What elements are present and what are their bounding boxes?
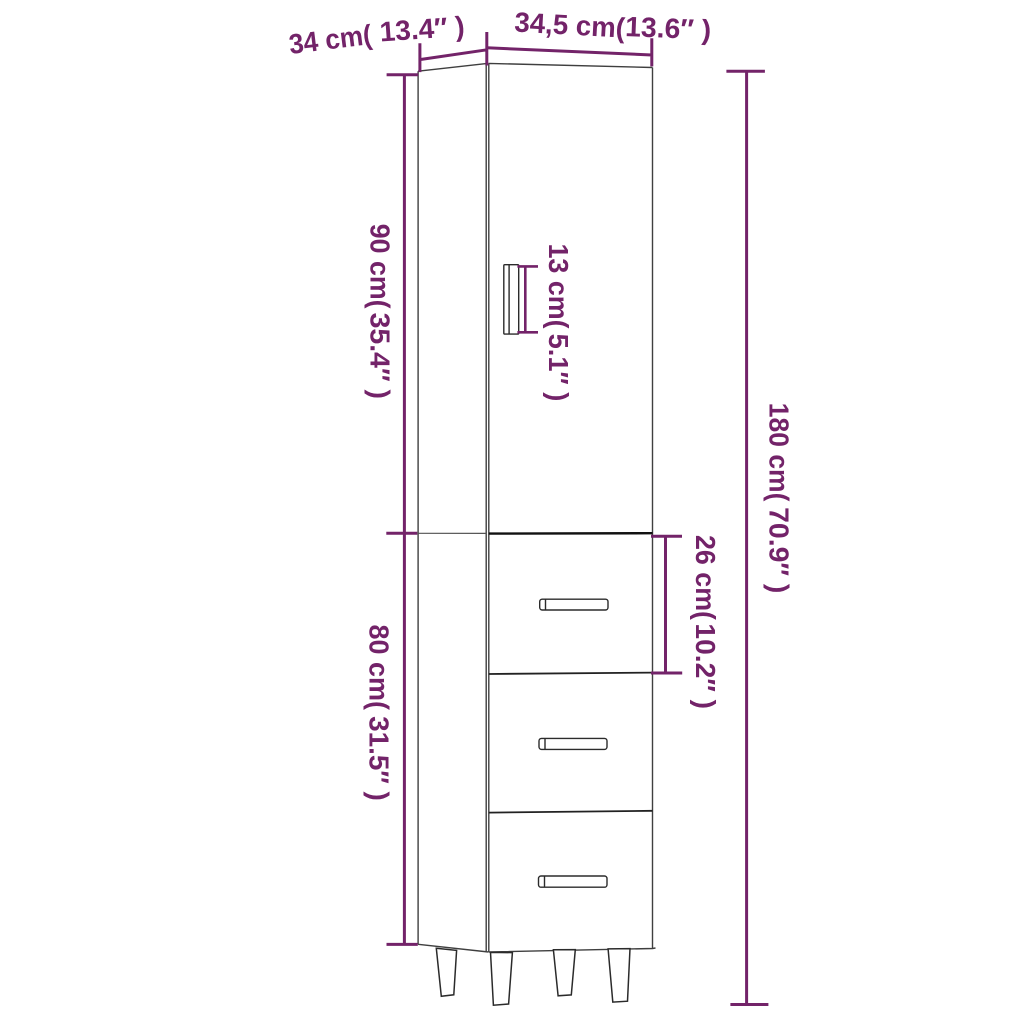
svg-text:13 cm(: 13 cm( <box>543 244 574 330</box>
svg-text:26 cm(: 26 cm( <box>690 535 721 621</box>
svg-text:5.1″ ): 5.1″ ) <box>543 334 574 402</box>
svg-text:31.5″ ): 31.5″ ) <box>363 716 394 801</box>
svg-text:90 cm(: 90 cm( <box>365 224 396 309</box>
svg-text:13.6″ ): 13.6″ ) <box>625 11 712 45</box>
svg-text:13.4″ ): 13.4″ ) <box>379 11 466 48</box>
svg-text:10.2″ ): 10.2″ ) <box>690 623 721 709</box>
svg-text:80 cm(: 80 cm( <box>363 625 394 711</box>
svg-text:180 cm(: 180 cm( <box>764 403 795 502</box>
svg-text:34,5 cm(: 34,5 cm( <box>514 7 627 44</box>
svg-text:35.4″ ): 35.4″ ) <box>365 313 396 399</box>
svg-text:70.9″ ): 70.9″ ) <box>764 507 795 593</box>
